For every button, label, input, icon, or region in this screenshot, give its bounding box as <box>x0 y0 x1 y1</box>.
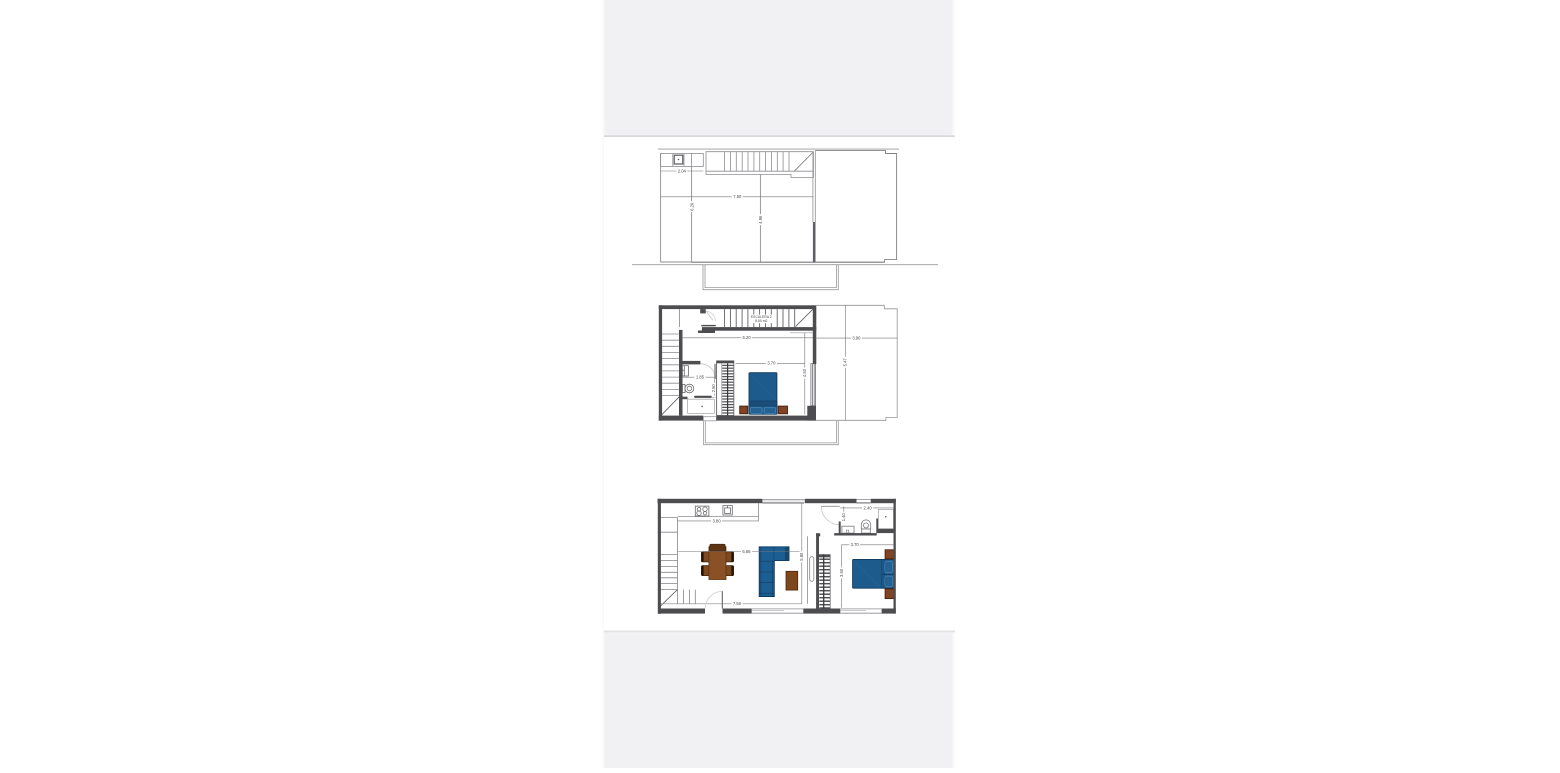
svg-text:2.50: 2.50 <box>711 384 716 393</box>
svg-text:1.85: 1.85 <box>696 375 705 380</box>
svg-text:8,60 m2: 8,60 m2 <box>755 319 767 323</box>
svg-text:3.90: 3.90 <box>852 336 861 341</box>
svg-text:6.20: 6.20 <box>743 335 752 340</box>
svg-text:5.47: 5.47 <box>842 358 847 367</box>
svg-text:2.40: 2.40 <box>864 505 873 510</box>
svg-text:1.40: 1.40 <box>841 512 846 521</box>
svg-text:3.50: 3.50 <box>839 568 844 577</box>
svg-text:3.80: 3.80 <box>713 518 722 523</box>
svg-text:6.26: 6.26 <box>689 202 694 211</box>
svg-text:4.96: 4.96 <box>758 215 763 224</box>
svg-text:6.66: 6.66 <box>742 549 751 554</box>
svg-text:3.70: 3.70 <box>851 542 860 547</box>
svg-text:7.56: 7.56 <box>733 601 742 606</box>
svg-text:5.80: 5.80 <box>799 552 804 561</box>
svg-text:4.50: 4.50 <box>802 368 807 377</box>
svg-text:7.50: 7.50 <box>733 194 742 199</box>
svg-text:3.70: 3.70 <box>767 361 776 366</box>
svg-text:2.04: 2.04 <box>678 168 687 173</box>
